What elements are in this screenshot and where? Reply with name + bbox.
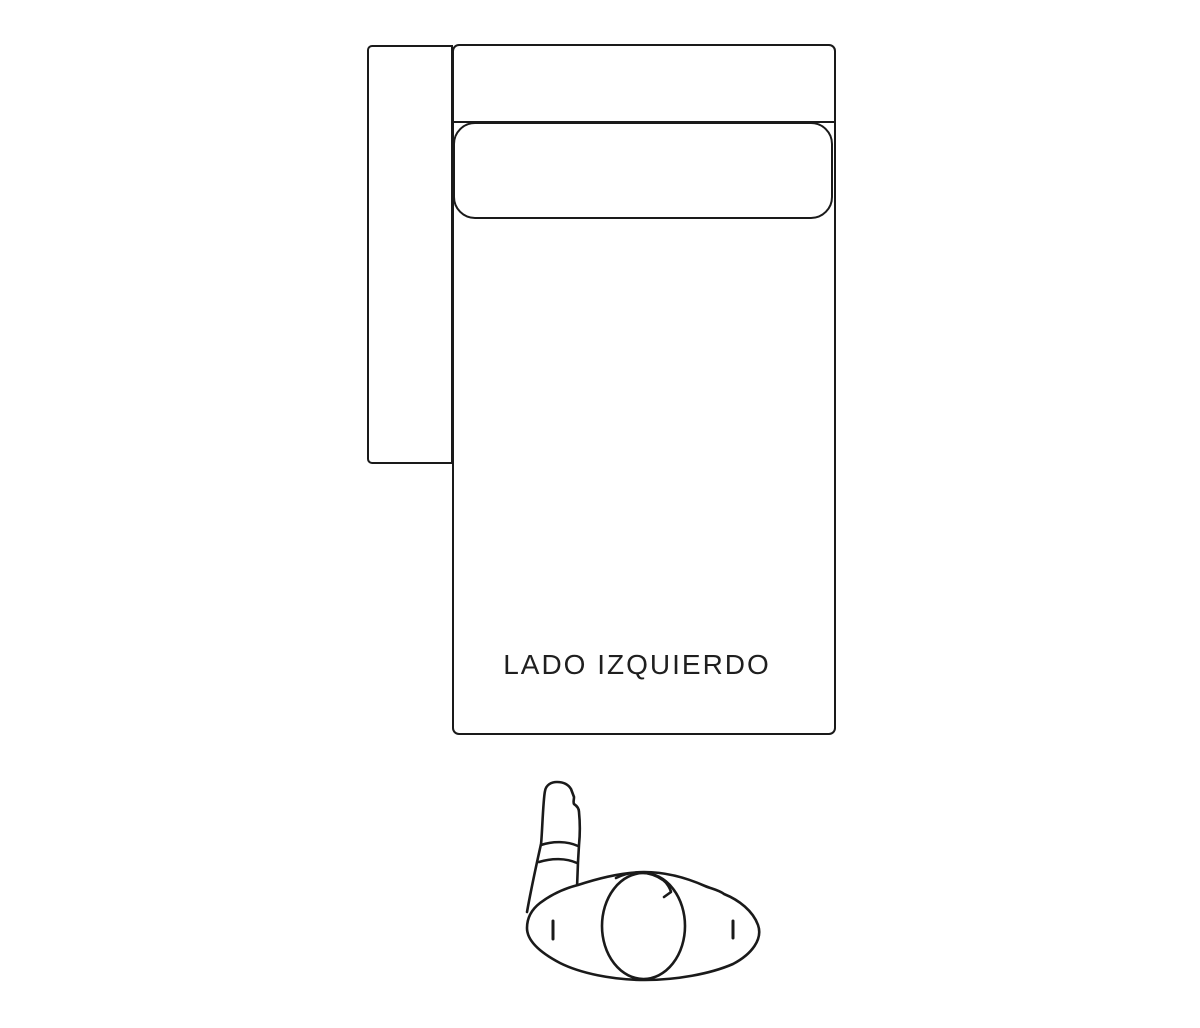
person-top-view-icon xyxy=(510,772,772,988)
figure-head xyxy=(602,873,685,979)
diagram-canvas: LADO IZQUIERDO xyxy=(0,0,1200,1028)
back-cushion-outline xyxy=(453,122,833,219)
armrest-outline xyxy=(367,45,453,464)
module-side-label: LADO IZQUIERDO xyxy=(445,649,829,681)
